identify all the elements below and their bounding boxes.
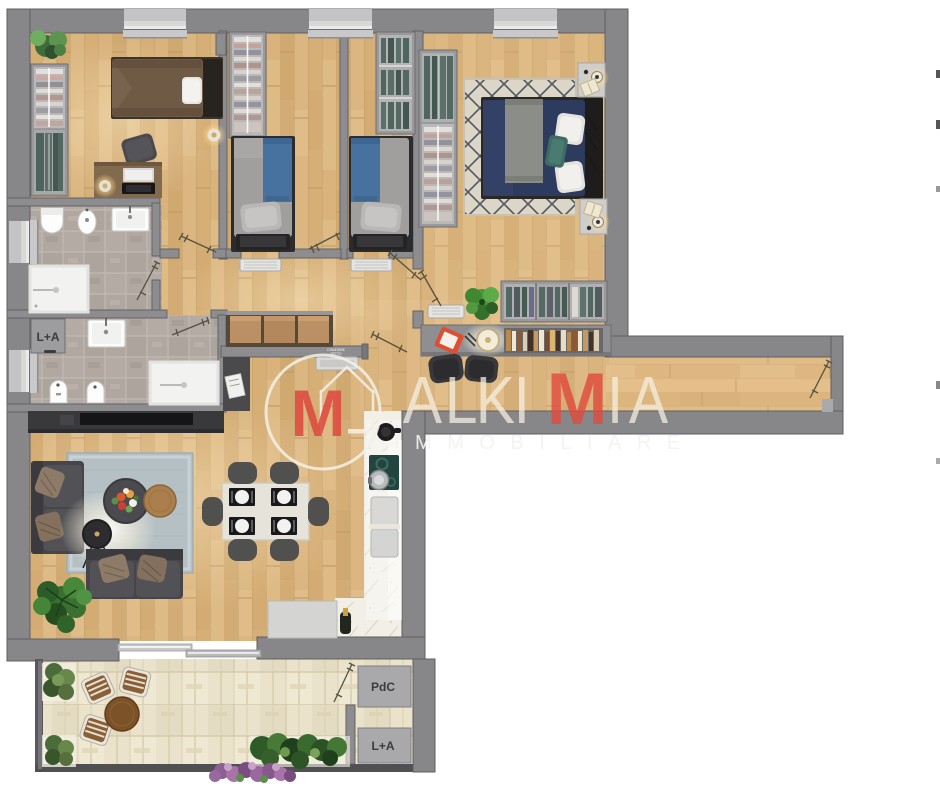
svg-text:M: M [291,376,346,450]
svg-text:A: A [403,364,442,438]
svg-text:L+A: L+A [371,739,394,753]
svg-text:I: I [514,364,530,438]
svg-text:A: A [629,364,668,438]
svg-text:PdC: PdC [371,680,395,694]
svg-text:I: I [607,364,623,438]
svg-text:K: K [476,364,515,438]
svg-text:M: M [547,359,608,440]
svg-text:IMMOBILIARE: IMMOBILIARE [394,432,696,454]
svg-text:L+A: L+A [36,330,59,344]
svg-text:L: L [445,364,478,438]
